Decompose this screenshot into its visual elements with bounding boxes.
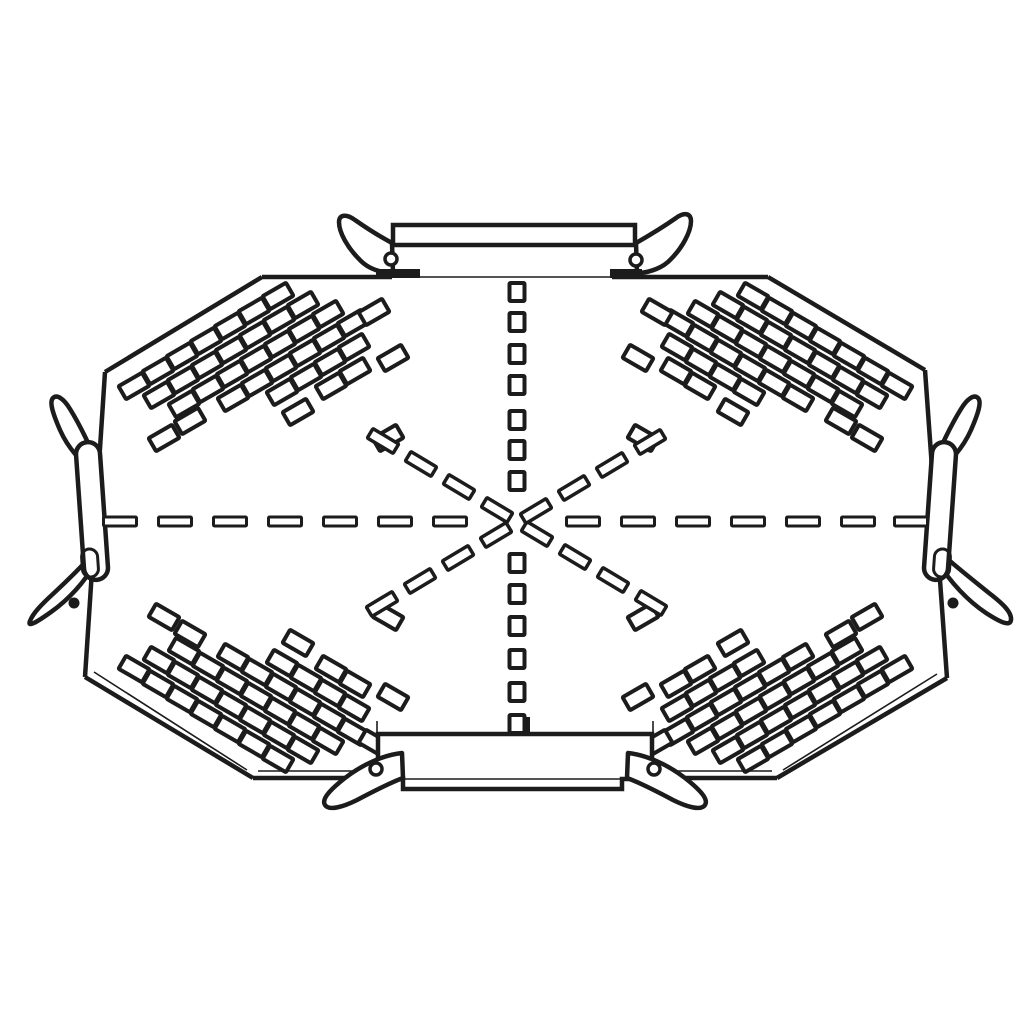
vertical-dash: [510, 683, 525, 701]
horizontal-dash: [732, 517, 765, 526]
vertical-dash: [510, 283, 525, 301]
horizontal-dash: [895, 517, 928, 526]
horizontal-dash: [434, 517, 467, 526]
top-coupler-rivet: [630, 254, 642, 266]
vertical-dash: [510, 376, 525, 394]
horizontal-dash: [379, 517, 412, 526]
horizontal-dash: [567, 517, 600, 526]
bottom-coupler-rivet: [370, 763, 382, 775]
vertical-dash: [510, 472, 525, 490]
vertical-dash: [510, 617, 525, 635]
horizontal-dash: [787, 517, 820, 526]
vertical-dash: [510, 411, 525, 429]
left-coupler-rivet: [69, 598, 80, 609]
horizontal-dash: [159, 517, 192, 526]
horizontal-dash: [324, 517, 357, 526]
bottom-coupler-rivet: [648, 763, 660, 775]
cable-tray-cross-diagram: [0, 0, 1030, 1030]
vertical-dash: [510, 554, 525, 572]
top-coupler-plate: [393, 225, 635, 245]
vertical-dash: [510, 650, 525, 668]
horizontal-dash: [677, 517, 710, 526]
top-coupler-foot-wedge: [376, 269, 420, 278]
bottom-coupler-plate: [378, 734, 652, 789]
horizontal-dash: [214, 517, 247, 526]
vertical-dash: [510, 345, 525, 363]
vertical-dash: [510, 313, 525, 331]
top-coupler-foot-wedge: [610, 269, 642, 278]
horizontal-dash: [269, 517, 302, 526]
horizontal-dash: [842, 517, 875, 526]
cable-tray-cross-figure: [0, 0, 1030, 1030]
horizontal-dash: [622, 517, 655, 526]
vertical-dash: [510, 441, 525, 459]
horizontal-dash: [104, 517, 137, 526]
vertical-dash: [510, 585, 525, 603]
right-coupler-rivet: [948, 598, 959, 609]
top-coupler-rivet: [385, 253, 397, 265]
vertical-dash: [510, 715, 525, 733]
